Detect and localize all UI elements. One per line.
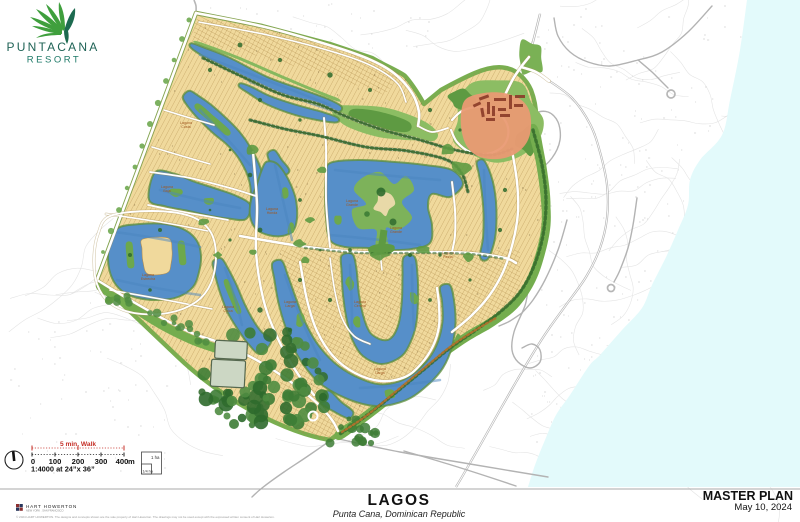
svg-text:May 10, 2024: May 10, 2024 xyxy=(734,502,792,513)
svg-text:Grande: Grande xyxy=(390,230,402,234)
svg-text:PUNTACANA: PUNTACANA xyxy=(7,40,100,54)
svg-text:m: m xyxy=(128,457,135,466)
svg-text:Recta: Recta xyxy=(443,255,452,259)
svg-text:LAGOS: LAGOS xyxy=(367,492,430,509)
svg-text:Larga: Larga xyxy=(285,304,294,308)
svg-text:NEW YORK . SAN FRANCISCO: NEW YORK . SAN FRANCISCO xyxy=(26,509,64,513)
svg-text:400: 400 xyxy=(116,457,129,466)
svg-text:1 ha: 1 ha xyxy=(151,455,160,460)
svg-text:1:4000 at 24”x 36”: 1:4000 at 24”x 36” xyxy=(31,465,95,474)
svg-text:MASTER PLAN: MASTER PLAN xyxy=(703,489,793,503)
svg-text:Larga: Larga xyxy=(375,371,384,375)
svg-text:1/4 ha: 1/4 ha xyxy=(143,470,154,474)
svg-text:Estrecha: Estrecha xyxy=(141,277,155,281)
svg-text:Costa: Costa xyxy=(181,125,190,129)
svg-text:Punta Cana, Dominican Republic: Punta Cana, Dominican Republic xyxy=(333,509,466,519)
svg-text:300: 300 xyxy=(95,457,108,466)
svg-text:Central: Central xyxy=(354,304,366,308)
svg-text:Honda: Honda xyxy=(267,211,278,215)
svg-text:RESORT: RESORT xyxy=(27,55,81,66)
svg-text:HART HOWERTON: HART HOWERTON xyxy=(26,504,77,509)
svg-text:Chica: Chica xyxy=(223,309,232,313)
svg-text:Baja: Baja xyxy=(163,189,170,193)
svg-text:© 2024 HART HOWERTON. The des: © 2024 HART HOWERTON. The designs and co… xyxy=(16,515,275,519)
svg-text:Grande: Grande xyxy=(346,203,358,207)
